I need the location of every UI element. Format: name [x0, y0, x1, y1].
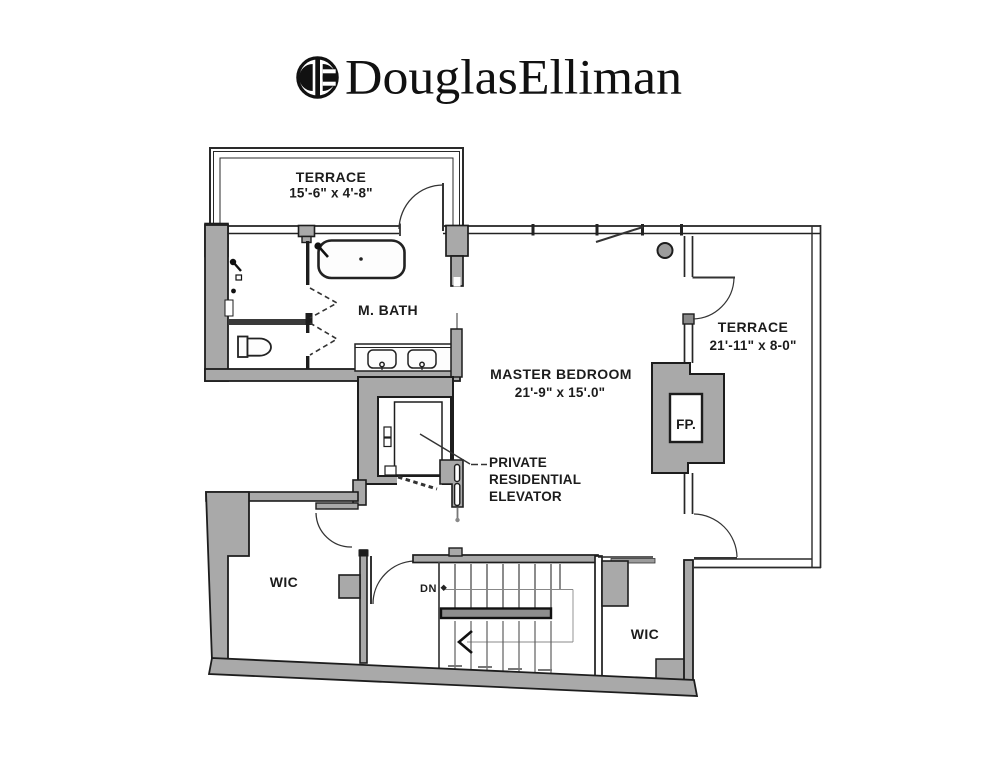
svg-text:15'-6" x 4'-8": 15'-6" x 4'-8": [289, 186, 373, 201]
svg-text:PRIVATE: PRIVATE: [489, 455, 547, 470]
svg-text:WIC: WIC: [631, 626, 659, 642]
svg-text:WIC: WIC: [270, 574, 298, 590]
svg-text:21'-9" x 15'.0": 21'-9" x 15'.0": [515, 385, 606, 400]
svg-text:M. BATH: M. BATH: [358, 302, 418, 318]
svg-text:DouglasElliman: DouglasElliman: [345, 49, 682, 105]
svg-text:RESIDENTIAL: RESIDENTIAL: [489, 472, 581, 487]
svg-text:TERRACE: TERRACE: [296, 169, 366, 185]
svg-text:TERRACE: TERRACE: [718, 319, 788, 335]
svg-text:DN: DN: [420, 583, 437, 595]
svg-text:MASTER BEDROOM: MASTER BEDROOM: [490, 366, 632, 382]
svg-text:ELEVATOR: ELEVATOR: [489, 489, 562, 504]
svg-text:FP.: FP.: [676, 417, 696, 432]
svg-text:21'-11" x 8-0": 21'-11" x 8-0": [709, 338, 796, 353]
